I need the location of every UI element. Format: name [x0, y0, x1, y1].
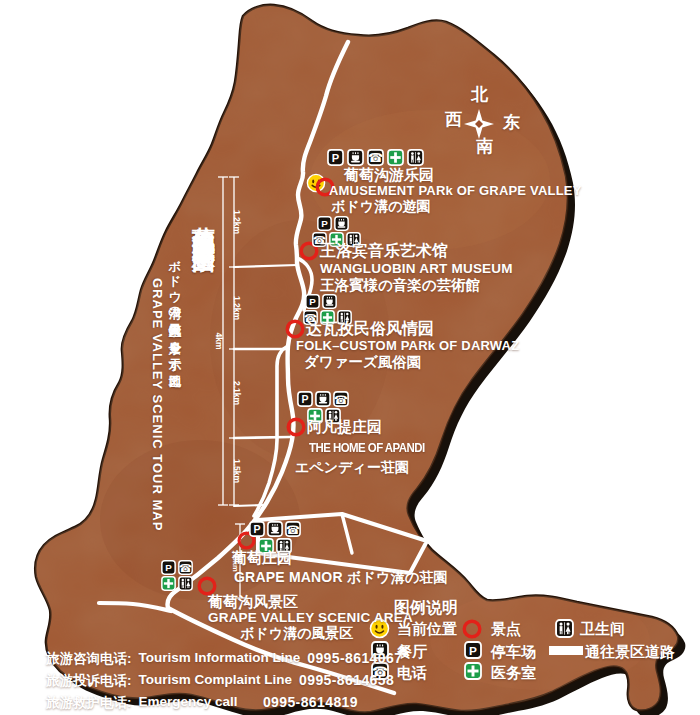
- map-title-en: GRAPE VALLEY SCENIC TOUR MAP: [150, 278, 165, 531]
- wangluobin-label-cn: 王洛宾音乐艺术馆: [320, 243, 448, 260]
- legend-road: 通往景区道路: [585, 644, 675, 660]
- phone-icon: [179, 561, 192, 575]
- medical-icon: [465, 663, 481, 679]
- phone-icon: [368, 150, 383, 165]
- grape-manor-label-cn: 葡萄庄园: [232, 550, 292, 566]
- phone-icon: [334, 392, 348, 407]
- wangluobin-label-en: WANGLUOBIN ART MUSEUM: [320, 262, 513, 276]
- amusement-park-label-cn: 葡萄沟游乐园: [344, 167, 434, 183]
- contact-label-en: Emergency call: [139, 694, 238, 712]
- contact-label-cn: 旅游咨询电话:: [46, 650, 132, 668]
- scenic-area-label-jp: ボドウ溝の風景区: [240, 626, 353, 641]
- legend-parking: 停车场: [491, 644, 536, 660]
- grape-manor-label-en-jp: GRAPE MANOR ボドウ溝の荘園: [234, 570, 448, 585]
- wangluobin-label-jp: 王洛賓様の音楽の芸術館: [320, 278, 480, 293]
- contact-emergency-line: 旅游救护电话: Emergency call 0995-8614819: [46, 694, 358, 712]
- restaurant-icon: [335, 217, 348, 230]
- scenic-area-label-en: GRAPE VALLEY SCENIC AREA: [208, 611, 413, 625]
- toilet-icon: [179, 577, 192, 590]
- contact-label-cn: 旅游救护电话:: [46, 694, 132, 712]
- phone-icon: [286, 522, 300, 537]
- compass-south: 南: [476, 138, 493, 156]
- scale-label: 1.2km: [232, 296, 242, 321]
- contact-number: 0995-8614067: [307, 650, 402, 668]
- connector-road-3: [234, 437, 290, 438]
- scale-total-label: 4km: [214, 332, 224, 349]
- parking-icon: [318, 217, 331, 230]
- legend-toilet: 卫生间: [580, 621, 625, 637]
- compass-east: 东: [503, 114, 520, 132]
- scale-label: 2.1km: [232, 381, 242, 406]
- legend-current-location: 当前位置: [397, 621, 457, 637]
- compass-west: 西: [445, 111, 462, 129]
- toilet-icon: [556, 620, 573, 637]
- legend-clinic: 医务室: [491, 665, 536, 681]
- darwaz-label-cn: 达瓦孜民俗风情园: [306, 321, 434, 338]
- darwaz-label-en: FOLK–CUSTOM PARk OF DARWAZ: [296, 339, 519, 353]
- scale-label: 1.2km: [232, 210, 242, 235]
- map-title-cn: 葡萄沟风景区游览示意全景图: [189, 208, 220, 234]
- contact-label-cn: 旅游投诉电话:: [46, 672, 132, 690]
- darwaz-label-jp: ダワァーズ風俗園: [304, 355, 421, 370]
- grape-valley-tour-map: P ☎: [0, 0, 700, 715]
- medical-icon: [388, 150, 403, 165]
- contact-label-en: Tourism Information Line: [139, 650, 301, 668]
- compass-north: 北: [471, 86, 488, 104]
- contact-number: 0995-8614819: [263, 694, 358, 712]
- apandi-label-jp: エペンディー荘園: [295, 460, 409, 475]
- medical-icon: [162, 577, 175, 590]
- parking-icon: [162, 561, 175, 574]
- contact-complaint-line: 旅游投诉电话: Tourism Complaint Line 0995-8614…: [46, 672, 358, 690]
- parking-icon: [250, 522, 264, 536]
- apandi-label-cn: 阿凡提庄园: [307, 419, 382, 435]
- legend-scenic-spot: 景点: [491, 621, 521, 637]
- parking-icon: [298, 392, 312, 406]
- toilet-icon: [408, 150, 423, 165]
- restaurant-icon: [323, 295, 336, 308]
- parking-icon: [328, 150, 343, 165]
- parking-icon: [306, 295, 319, 308]
- amusement-park-label-jp: ボドウ溝の遊園: [331, 199, 430, 214]
- restaurant-icon: [268, 522, 282, 536]
- contact-number: 0995-8614658: [299, 672, 394, 690]
- scale-label: 1.5km: [232, 459, 242, 484]
- scenic-area-label-cn: 葡萄沟风景区: [208, 594, 298, 610]
- restaurant-icon: [316, 392, 330, 406]
- legend-title: 图例说明: [394, 600, 458, 617]
- road-swatch-icon: [549, 646, 583, 655]
- apandi-label-en: THE HOME OF APANDI: [309, 441, 425, 455]
- amusement-park-label-en: AMUSEMENT PARk OF GRAPE VALLEY: [329, 184, 582, 198]
- parking-icon: [465, 642, 481, 658]
- contact-label-en: Tourism Complaint Line: [139, 672, 293, 690]
- map-title-jp: ボドウ溝の風景区の全景を示す地図: [166, 251, 183, 367]
- contact-info-line: 旅游咨询电话: Tourism Information Line 0995-86…: [46, 650, 358, 668]
- restaurant-icon: [348, 150, 363, 165]
